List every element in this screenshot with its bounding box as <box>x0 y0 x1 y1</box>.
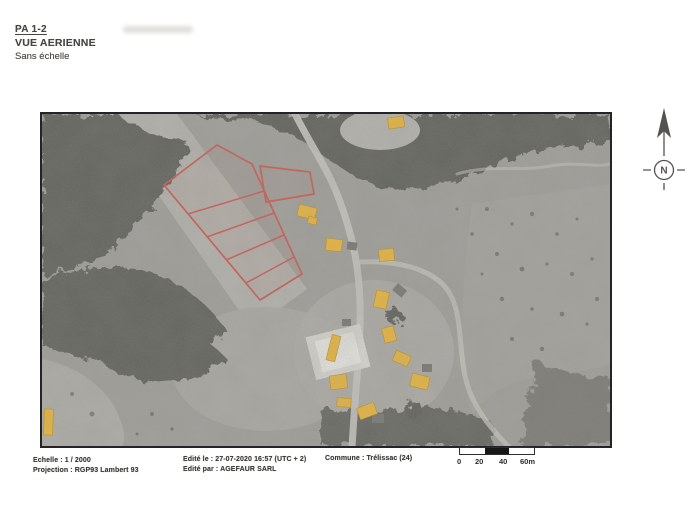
title-block: PA 1-2 VUE AERIENNE Sans échelle <box>15 24 96 62</box>
scale-note: Sans échelle <box>15 51 96 62</box>
projection-text: Projection : RGP93 Lambert 93 <box>33 466 139 476</box>
edition-block: Edité le : 27-07-2020 16:57 (UTC + 2) Ed… <box>183 455 306 474</box>
north-arrow: N <box>640 106 688 194</box>
edited-by-text: Edité par : AGEFAUR SARL <box>183 465 306 475</box>
photo-grain <box>42 114 610 446</box>
document-page: PA 1-2 VUE AERIENNE Sans échelle <box>0 0 700 525</box>
scale-bar: 0 20 40 60m <box>459 447 545 469</box>
scale-projection-block: Echelle : 1 / 2000 Projection : RGP93 La… <box>33 456 139 475</box>
document-reference: PA 1-2 <box>15 24 47 35</box>
scale-label-40: 40 <box>499 457 507 466</box>
page-title: VUE AERIENNE <box>15 37 96 49</box>
aerial-photo <box>40 112 612 448</box>
scan-artifact <box>123 26 193 33</box>
edited-date-text: Edité le : 27-07-2020 16:57 (UTC + 2) <box>183 455 306 465</box>
aerial-photo-image <box>42 114 610 446</box>
commune-text: Commune : Trélissac (24) <box>325 454 412 464</box>
north-letter: N <box>660 166 667 177</box>
scale-text: Echelle : 1 / 2000 <box>33 456 139 466</box>
scale-label-20: 20 <box>475 457 483 466</box>
scale-label-60: 60m <box>520 457 535 466</box>
scale-bar-graphic <box>459 447 535 455</box>
scale-label-0: 0 <box>457 457 461 466</box>
